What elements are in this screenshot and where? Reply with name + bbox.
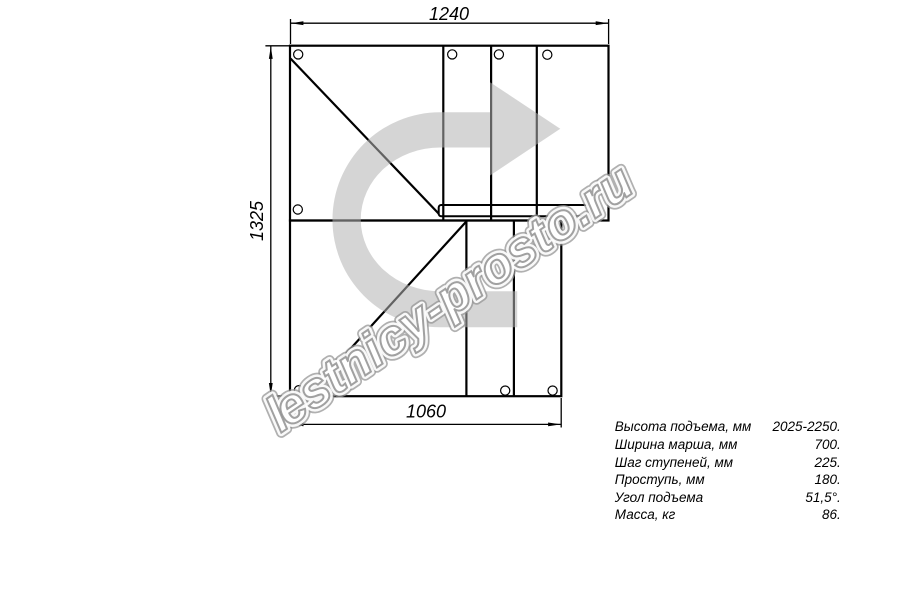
svg-text:1060: 1060: [406, 402, 446, 422]
svg-text:1325: 1325: [247, 200, 267, 241]
svg-text:1240: 1240: [429, 4, 469, 24]
svg-text:lestnicy-prosto.ru: lestnicy-prosto.ru: [255, 153, 643, 443]
